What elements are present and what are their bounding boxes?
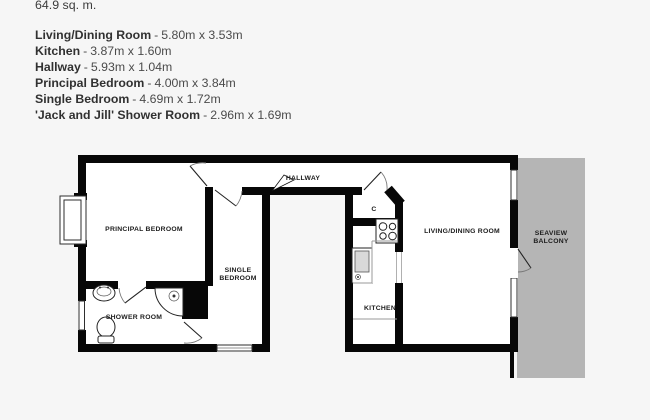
living-room-window-bottom bbox=[510, 278, 518, 317]
wall-top bbox=[78, 155, 518, 163]
floorplan-page: 64.9 sq. m. Living/Dining Room-5.80m x 3… bbox=[0, 0, 650, 420]
hallway-label: HALLWAY bbox=[286, 175, 321, 182]
wall-hallway bbox=[242, 187, 362, 195]
floorplan-drawing: PRINCIPAL BEDROOM SINGLE BEDROOM SHOWER … bbox=[0, 0, 650, 420]
single-bedroom-label-line1: SINGLE bbox=[225, 267, 252, 274]
stove bbox=[376, 219, 398, 243]
wash-basin bbox=[93, 285, 115, 301]
seaview-balcony-area bbox=[517, 158, 585, 378]
wall-principal-right bbox=[205, 187, 213, 286]
wall-kitchen-living-lower bbox=[395, 283, 403, 344]
living-room-window-top bbox=[510, 170, 518, 200]
wall-right-mid bbox=[510, 200, 518, 248]
wall-right-top bbox=[510, 155, 518, 170]
wall-single-bedroom-right bbox=[262, 187, 270, 352]
single-bedroom-label-line2: BEDROOM bbox=[219, 275, 256, 282]
wall-right-low bbox=[510, 317, 518, 352]
kitchen-label: KITCHEN bbox=[364, 305, 396, 312]
bay-window bbox=[60, 196, 86, 244]
shower-room-window bbox=[78, 301, 86, 330]
balcony-label-line2: BALCONY bbox=[533, 238, 569, 245]
single-bedroom-window bbox=[217, 344, 252, 352]
shower-room-label: SHOWER ROOM bbox=[106, 314, 162, 321]
balcony-label-line1: SEAVIEW bbox=[535, 230, 568, 237]
cupboard-label: C bbox=[371, 206, 376, 213]
wall-bottom-right bbox=[345, 344, 518, 352]
kitchen-sink bbox=[352, 248, 372, 283]
living-dining-label: LIVING/DINING ROOM bbox=[424, 228, 500, 235]
principal-bedroom-label: PRINCIPAL BEDROOM bbox=[105, 226, 183, 233]
room-floors bbox=[78, 155, 518, 352]
balcony-edge bbox=[510, 352, 514, 378]
storage-block bbox=[182, 284, 208, 319]
